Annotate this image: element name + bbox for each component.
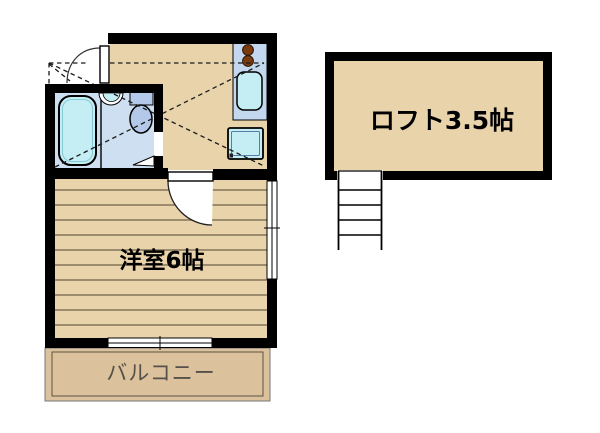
wall-left — [45, 84, 55, 348]
wall-right-upper — [267, 33, 277, 181]
balcony-label: バルコニー — [106, 361, 216, 385]
loft-label: ロフト3.5帖 — [370, 106, 514, 135]
bathtub — [59, 96, 96, 165]
wall-bathroom-top — [45, 84, 163, 93]
wall-top — [108, 33, 277, 44]
wall-right-lower — [267, 279, 277, 348]
balcony-window — [108, 336, 212, 350]
bathroom-doorway — [154, 132, 163, 156]
washer-tap — [230, 154, 234, 158]
washing-machine — [228, 128, 263, 159]
room-door-leaf — [168, 172, 213, 181]
western-room-label: 洋室6帖 — [119, 247, 204, 274]
kitchen-sink — [237, 72, 262, 110]
floor-plan-page: ロフト3.5帖 洋室6帖 バルコニー — [0, 0, 600, 433]
wall-mid-right — [213, 169, 277, 180]
entrance-door-leaf — [100, 46, 109, 83]
stove-burner — [243, 45, 254, 56]
toilet — [130, 92, 153, 133]
stove-burner — [243, 56, 254, 67]
wall-bottom-right — [212, 338, 277, 348]
loft-ladder-opening — [337, 170, 383, 181]
toilet-tank — [130, 92, 153, 105]
wall-mid-left — [45, 168, 168, 179]
toilet-bowl — [130, 105, 152, 133]
floor-plan: ロフト3.5帖 洋室6帖 バルコニー — [0, 0, 600, 433]
wall-bathroom-right-upper — [154, 84, 163, 132]
